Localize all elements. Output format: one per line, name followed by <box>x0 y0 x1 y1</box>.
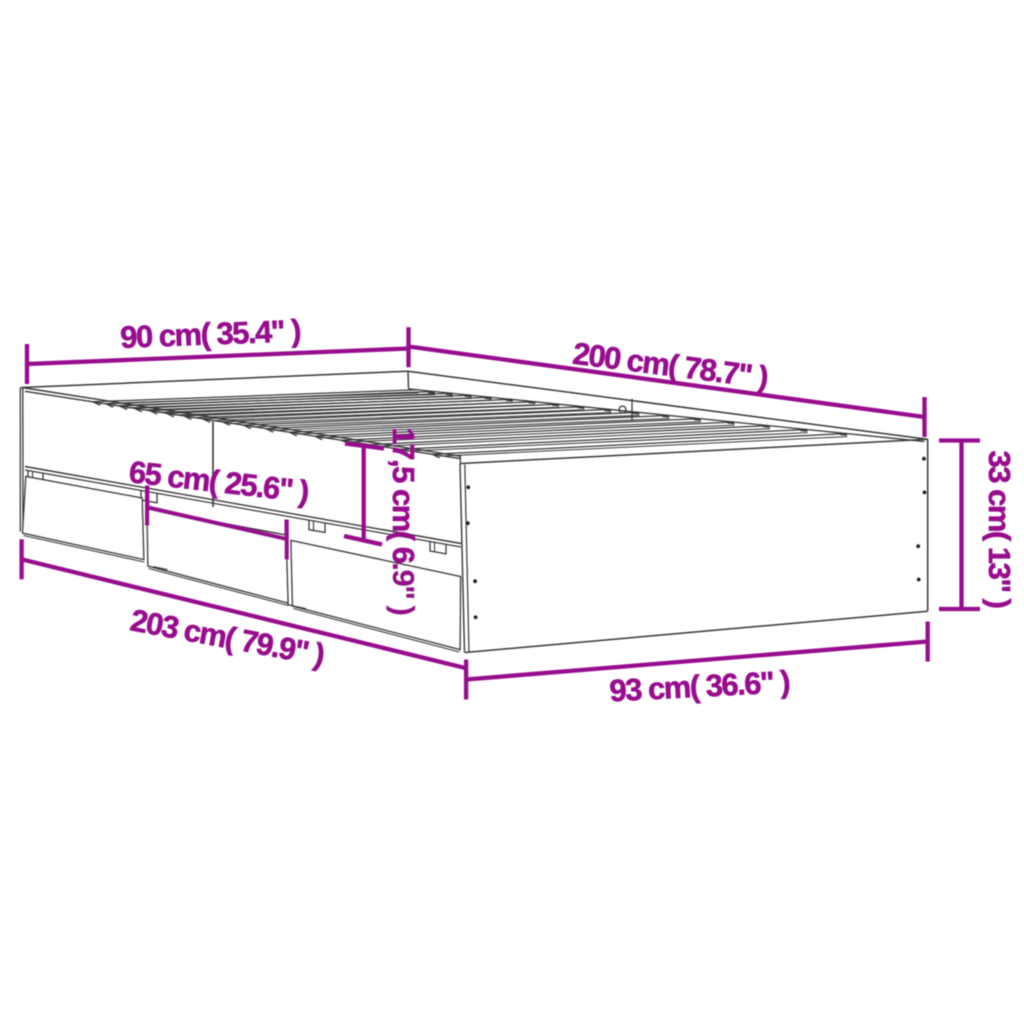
svg-text:17,5 cm( 6.9" ): 17,5 cm( 6.9" ) <box>386 428 421 615</box>
svg-text:90 cm( 35.4" ): 90 cm( 35.4" ) <box>120 313 301 355</box>
svg-text:33 cm( 13" ): 33 cm( 13" ) <box>982 451 1017 608</box>
